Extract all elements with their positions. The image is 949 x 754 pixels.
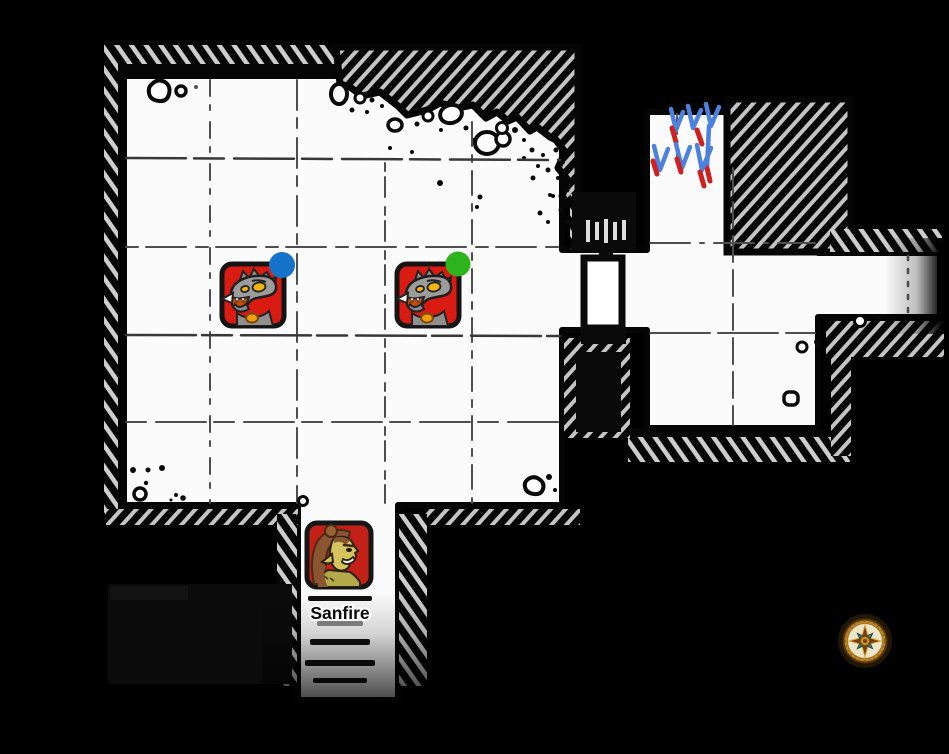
wall-hatch <box>628 436 850 462</box>
door-frame <box>584 258 622 328</box>
map-canvas[interactable]: Sanfire <box>0 0 949 754</box>
player-token-sanfire[interactable] <box>307 523 371 587</box>
compass-icon[interactable] <box>838 614 892 668</box>
status-dot-blue <box>269 252 295 278</box>
token-label: Sanfire <box>310 603 370 623</box>
wall-hatch <box>104 45 118 523</box>
vtt-stage: Sanfire <box>0 0 949 754</box>
wall-hatch <box>831 352 851 456</box>
status-dot-green <box>446 252 471 277</box>
wall-hatch <box>106 509 298 525</box>
wall-band <box>628 429 850 437</box>
wall-hatch <box>424 509 580 525</box>
